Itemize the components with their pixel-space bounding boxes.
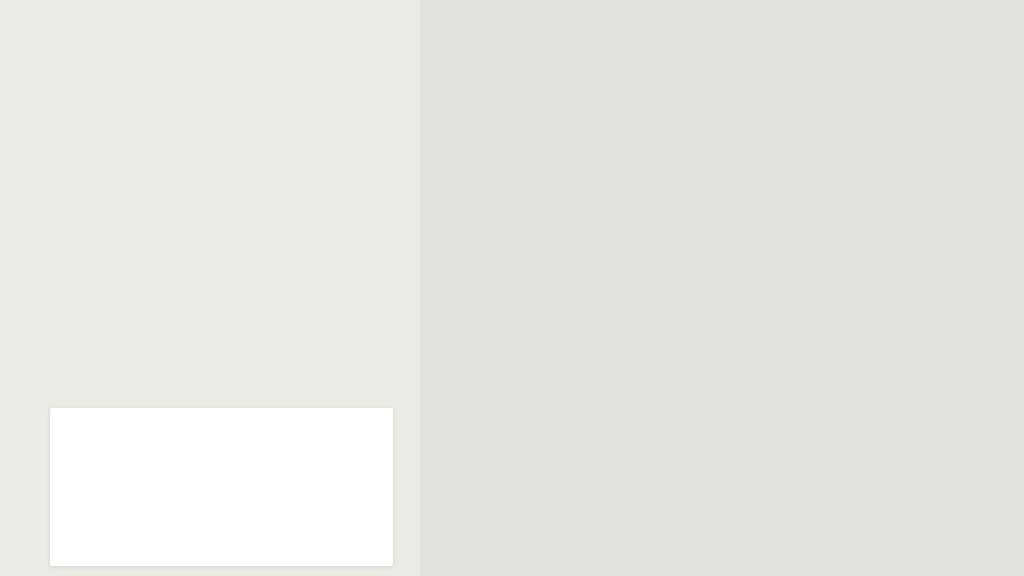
entrada-line-swatch bbox=[74, 516, 156, 525]
legend-item-entrada bbox=[50, 508, 393, 532]
salida-line-swatch bbox=[74, 486, 156, 495]
traffic-change-flyer bbox=[0, 0, 1024, 576]
legend-box bbox=[50, 408, 393, 566]
legend-item-salida bbox=[50, 478, 393, 502]
info-panel bbox=[0, 0, 420, 576]
